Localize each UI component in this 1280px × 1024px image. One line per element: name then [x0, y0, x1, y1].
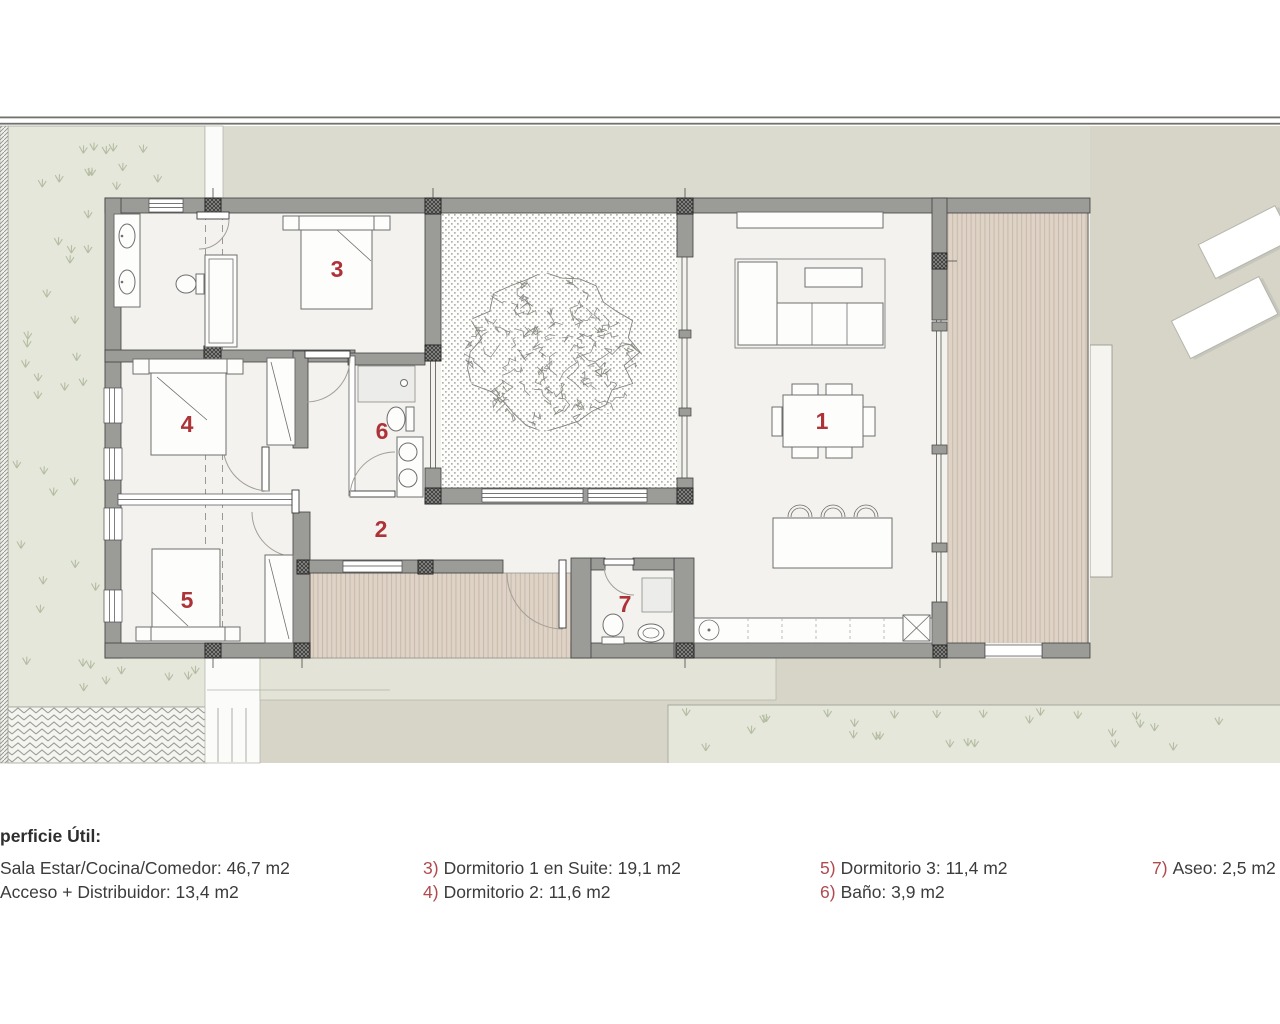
porch-apron	[260, 658, 776, 700]
legend-item-aseo: 7)Aseo: 2,5 m2	[1152, 858, 1276, 878]
legend-title: perficie Útil:	[0, 826, 101, 847]
front-door	[197, 212, 229, 219]
legend-item-bano: 6)Baño: 3,9 m2	[820, 882, 945, 902]
room-label-1: 1	[816, 408, 829, 434]
kitchen-counter	[694, 615, 932, 643]
room-label-7: 7	[619, 591, 632, 617]
floor-plan-canvas: 1 2 3 4 5 6 7	[0, 0, 1280, 790]
legend-item-dormitorio-1: 3)Dormitorio 1 en Suite: 19,1 m2	[423, 858, 681, 878]
front-yard-band	[223, 126, 1090, 198]
room-label-6: 6	[376, 418, 389, 444]
rear-lawn	[668, 705, 1280, 763]
entry-path-top	[205, 126, 223, 198]
room-label-2: 2	[375, 516, 388, 542]
boundary-fence-line	[0, 117, 1280, 125]
room-label-5: 5	[181, 587, 194, 613]
driveway-herringbone	[8, 707, 207, 763]
legend-item-sala-estar: Sala Estar/Cocina/Comedor: 46,7 m2	[0, 858, 290, 878]
terrace-deck	[947, 213, 1088, 643]
entry-door	[559, 560, 566, 628]
sideboard	[737, 212, 883, 228]
floor-plan-page: 1 2 3 4 5 6 7 perficie Útil: Sala Estar/…	[0, 0, 1280, 1024]
legend-item-acceso: Acceso + Distribuidor: 13,4 m2	[0, 882, 239, 902]
planter-strip	[1090, 345, 1112, 577]
legend-item-dormitorio-3: 5)Dormitorio 3: 11,4 m2	[820, 858, 1008, 878]
room-label-3: 3	[331, 256, 344, 282]
entrance-porch-deck	[310, 573, 571, 658]
legend-item-dormitorio-2: 4)Dormitorio 2: 11,6 m2	[423, 882, 611, 902]
courtyard-gravel	[441, 213, 677, 488]
coffee-table	[805, 268, 862, 287]
room-label-4: 4	[181, 411, 194, 437]
side-hatch-strip	[0, 126, 8, 763]
